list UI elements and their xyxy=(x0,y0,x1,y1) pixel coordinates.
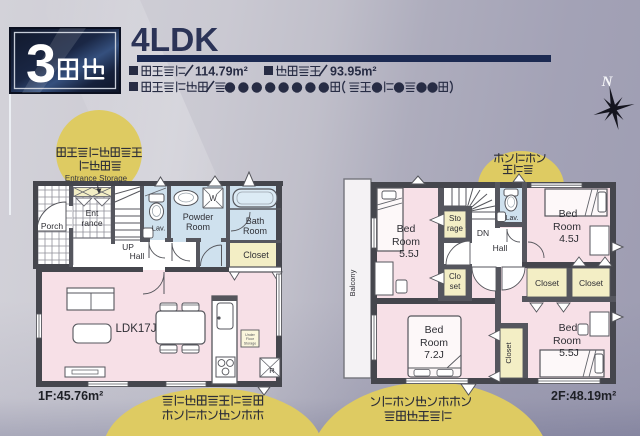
svg-text:4LDK: 4LDK xyxy=(131,22,218,59)
svg-text:Room: Room xyxy=(553,335,581,347)
svg-text:Hall: Hall xyxy=(493,243,508,253)
svg-text:2F:48.19m²: 2F:48.19m² xyxy=(551,389,616,403)
svg-text:Closet: Closet xyxy=(579,278,604,288)
svg-text:93.95m²: 93.95m² xyxy=(330,65,377,79)
svg-text:rance: rance xyxy=(81,218,103,228)
svg-text:Porch: Porch xyxy=(41,221,63,231)
svg-text:rage: rage xyxy=(447,224,464,233)
svg-text:5.5J: 5.5J xyxy=(399,248,419,260)
svg-text:7.2J: 7.2J xyxy=(424,349,444,361)
svg-text:Closet: Closet xyxy=(243,250,269,260)
svg-text:DN: DN xyxy=(477,228,489,238)
svg-text:Room: Room xyxy=(186,222,210,232)
svg-text:Bed: Bed xyxy=(397,223,416,235)
svg-text:Floor: Floor xyxy=(246,337,255,341)
svg-text:Entrance Storage: Entrance Storage xyxy=(65,174,128,183)
svg-text:Room: Room xyxy=(243,226,267,236)
svg-text:1F:45.76m²: 1F:45.76m² xyxy=(38,389,103,403)
svg-text:Storage: Storage xyxy=(244,342,257,346)
svg-text:Bed: Bed xyxy=(559,208,578,220)
svg-text:Bed: Bed xyxy=(425,324,444,336)
svg-text:Hall: Hall xyxy=(130,251,145,261)
svg-text:Balcony: Balcony xyxy=(348,269,357,296)
svg-text:Clo: Clo xyxy=(449,272,462,281)
svg-text:114.79m²: 114.79m² xyxy=(195,65,248,79)
svg-text:W: W xyxy=(209,194,217,203)
svg-text:Sto: Sto xyxy=(449,214,462,223)
svg-text:Closet: Closet xyxy=(535,278,560,288)
svg-text:Closet: Closet xyxy=(504,341,513,363)
svg-text:N: N xyxy=(601,74,614,90)
svg-text:Bed: Bed xyxy=(559,322,578,334)
svg-text:LDK17J: LDK17J xyxy=(116,323,157,335)
svg-text:Room: Room xyxy=(553,221,581,233)
svg-text:Powder: Powder xyxy=(183,212,214,222)
svg-text:R: R xyxy=(269,366,275,375)
svg-text:5.5J: 5.5J xyxy=(559,347,579,359)
svg-text:Bath: Bath xyxy=(246,216,265,226)
svg-text:Room: Room xyxy=(392,236,420,248)
svg-text:Lav.: Lav. xyxy=(152,224,166,233)
svg-text:Lav.: Lav. xyxy=(506,215,519,222)
svg-text:3: 3 xyxy=(26,34,56,94)
svg-text:set: set xyxy=(450,282,461,291)
svg-text:Room: Room xyxy=(420,337,448,349)
svg-text:4.5J: 4.5J xyxy=(559,233,579,245)
svg-text:Ent: Ent xyxy=(86,208,99,218)
